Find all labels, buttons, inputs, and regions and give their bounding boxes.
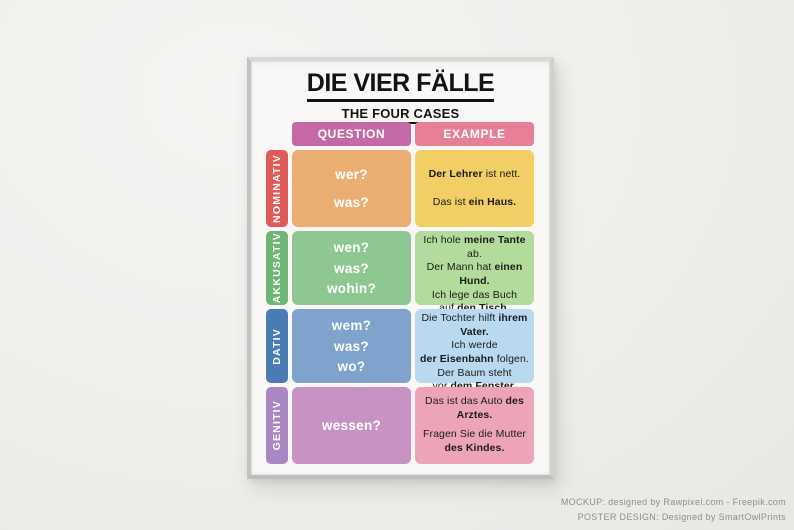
- example-text-segment: Fragen Sie die Mutter: [423, 428, 526, 440]
- case-row-genitiv: GENITIVwessen?Das ist das Auto des Arzte…: [266, 387, 534, 464]
- example-bold-segment: Der Lehrer: [429, 168, 483, 180]
- poster-frame: DIE VIER FÄLLE THE FOUR CASES QUESTION E…: [247, 57, 554, 479]
- example-bold-segment: der Eisenbahn: [420, 353, 494, 365]
- poster-paper: DIE VIER FÄLLE THE FOUR CASES QUESTION E…: [251, 61, 550, 475]
- question-cell-akkusativ: wen?was?wohin?: [292, 231, 411, 305]
- credits: MOCKUP: designed by Rawpixel.com - Freep…: [561, 495, 786, 524]
- example-text-segment: Das ist: [433, 196, 469, 208]
- example-sentence: Das ist ein Haus.: [433, 196, 516, 210]
- example-bold-segment: ein Haus.: [469, 196, 517, 208]
- case-label-text-dativ: DATIV: [271, 328, 283, 365]
- example-text-segment: Ich hole: [423, 234, 464, 246]
- poster-subtitle-wrap: THE FOUR CASES: [251, 105, 550, 124]
- question-word: wem?: [332, 318, 371, 333]
- example-sentence: Der Lehrer ist nett.: [429, 168, 521, 182]
- example-text-segment: Die Tochter hilft: [422, 312, 499, 324]
- example-sentence: Ich werdeder Eisenbahn folgen.: [420, 339, 529, 366]
- example-text-segment: ab.: [467, 248, 482, 260]
- question-cell-dativ: wem?was?wo?: [292, 309, 411, 383]
- example-sentence: Fragen Sie die Mutterdes Kindes.: [423, 428, 526, 455]
- example-column-header: EXAMPLE: [415, 122, 534, 146]
- question-word: wen?: [334, 240, 370, 255]
- example-text-segment: Ich lege das Buch: [432, 289, 517, 301]
- example-sentence: Ich hole meine Tante ab.: [419, 234, 530, 261]
- question-word: was?: [334, 261, 369, 276]
- case-label-text-genitiv: GENITIV: [271, 400, 283, 450]
- poster-subtitle: THE FOUR CASES: [342, 106, 460, 124]
- case-label-genitiv: GENITIV: [266, 387, 288, 464]
- case-row-nominativ: NOMINATIVwer?was?Der Lehrer ist nett.Das…: [266, 150, 534, 227]
- example-cell-genitiv: Das ist das Auto des Arztes.Fragen Sie d…: [415, 387, 534, 464]
- case-label-dativ: DATIV: [266, 309, 288, 383]
- case-row-dativ: DATIVwem?was?wo?Die Tochter hilft ihrem …: [266, 309, 534, 383]
- poster-design-credit-line: POSTER DESIGN: Designed by SmartOwlPrint…: [561, 510, 786, 524]
- example-text-segment: Ich werde: [451, 339, 497, 351]
- question-word: wo?: [338, 359, 366, 374]
- question-word: was?: [334, 339, 369, 354]
- example-cell-akkusativ: Ich hole meine Tante ab.Der Mann hat ein…: [415, 231, 534, 305]
- wall-background: DIE VIER FÄLLE THE FOUR CASES QUESTION E…: [0, 0, 794, 530]
- question-cell-genitiv: wessen?: [292, 387, 411, 464]
- question-word: wohin?: [327, 281, 376, 296]
- table-rows: NOMINATIVwer?was?Der Lehrer ist nett.Das…: [266, 150, 534, 464]
- case-label-nominativ: NOMINATIV: [266, 150, 288, 227]
- question-cell-nominativ: wer?was?: [292, 150, 411, 227]
- example-sentence: Der Mann hat einen Hund.: [419, 261, 530, 288]
- example-sentence: Das ist das Auto des Arztes.: [419, 395, 530, 422]
- example-cell-nominativ: Der Lehrer ist nett.Das ist ein Haus.: [415, 150, 534, 227]
- question-word: wessen?: [322, 418, 381, 433]
- example-text-segment: ist nett.: [483, 168, 521, 180]
- example-sentence: Die Tochter hilft ihrem Vater.: [419, 312, 530, 339]
- case-label-text-akkusativ: AKKUSATIV: [271, 232, 283, 303]
- question-word: was?: [334, 195, 369, 210]
- title-block: DIE VIER FÄLLE THE FOUR CASES: [251, 70, 550, 124]
- example-cell-dativ: Die Tochter hilft ihrem Vater.Ich werded…: [415, 309, 534, 383]
- example-text-segment: Der Baum steht: [437, 367, 511, 379]
- example-text-segment: Der Mann hat: [427, 261, 495, 273]
- question-column-header: QUESTION: [292, 122, 411, 146]
- poster-title: DIE VIER FÄLLE: [307, 70, 494, 102]
- question-word: wer?: [335, 167, 368, 182]
- example-bold-segment: meine Tante: [464, 234, 526, 246]
- case-label-akkusativ: AKKUSATIV: [266, 231, 288, 305]
- mockup-credit-line: MOCKUP: designed by Rawpixel.com - Freep…: [561, 495, 786, 509]
- example-bold-segment: des Kindes.: [444, 442, 504, 454]
- example-text-segment: Das ist das Auto: [425, 395, 506, 407]
- table-header-row: QUESTION EXAMPLE: [292, 122, 534, 146]
- case-row-akkusativ: AKKUSATIVwen?was?wohin?Ich hole meine Ta…: [266, 231, 534, 305]
- cases-table: QUESTION EXAMPLE NOMINATIVwer?was?Der Le…: [266, 122, 534, 468]
- example-text-segment: folgen.: [494, 353, 529, 365]
- case-label-text-nominativ: NOMINATIV: [271, 154, 283, 223]
